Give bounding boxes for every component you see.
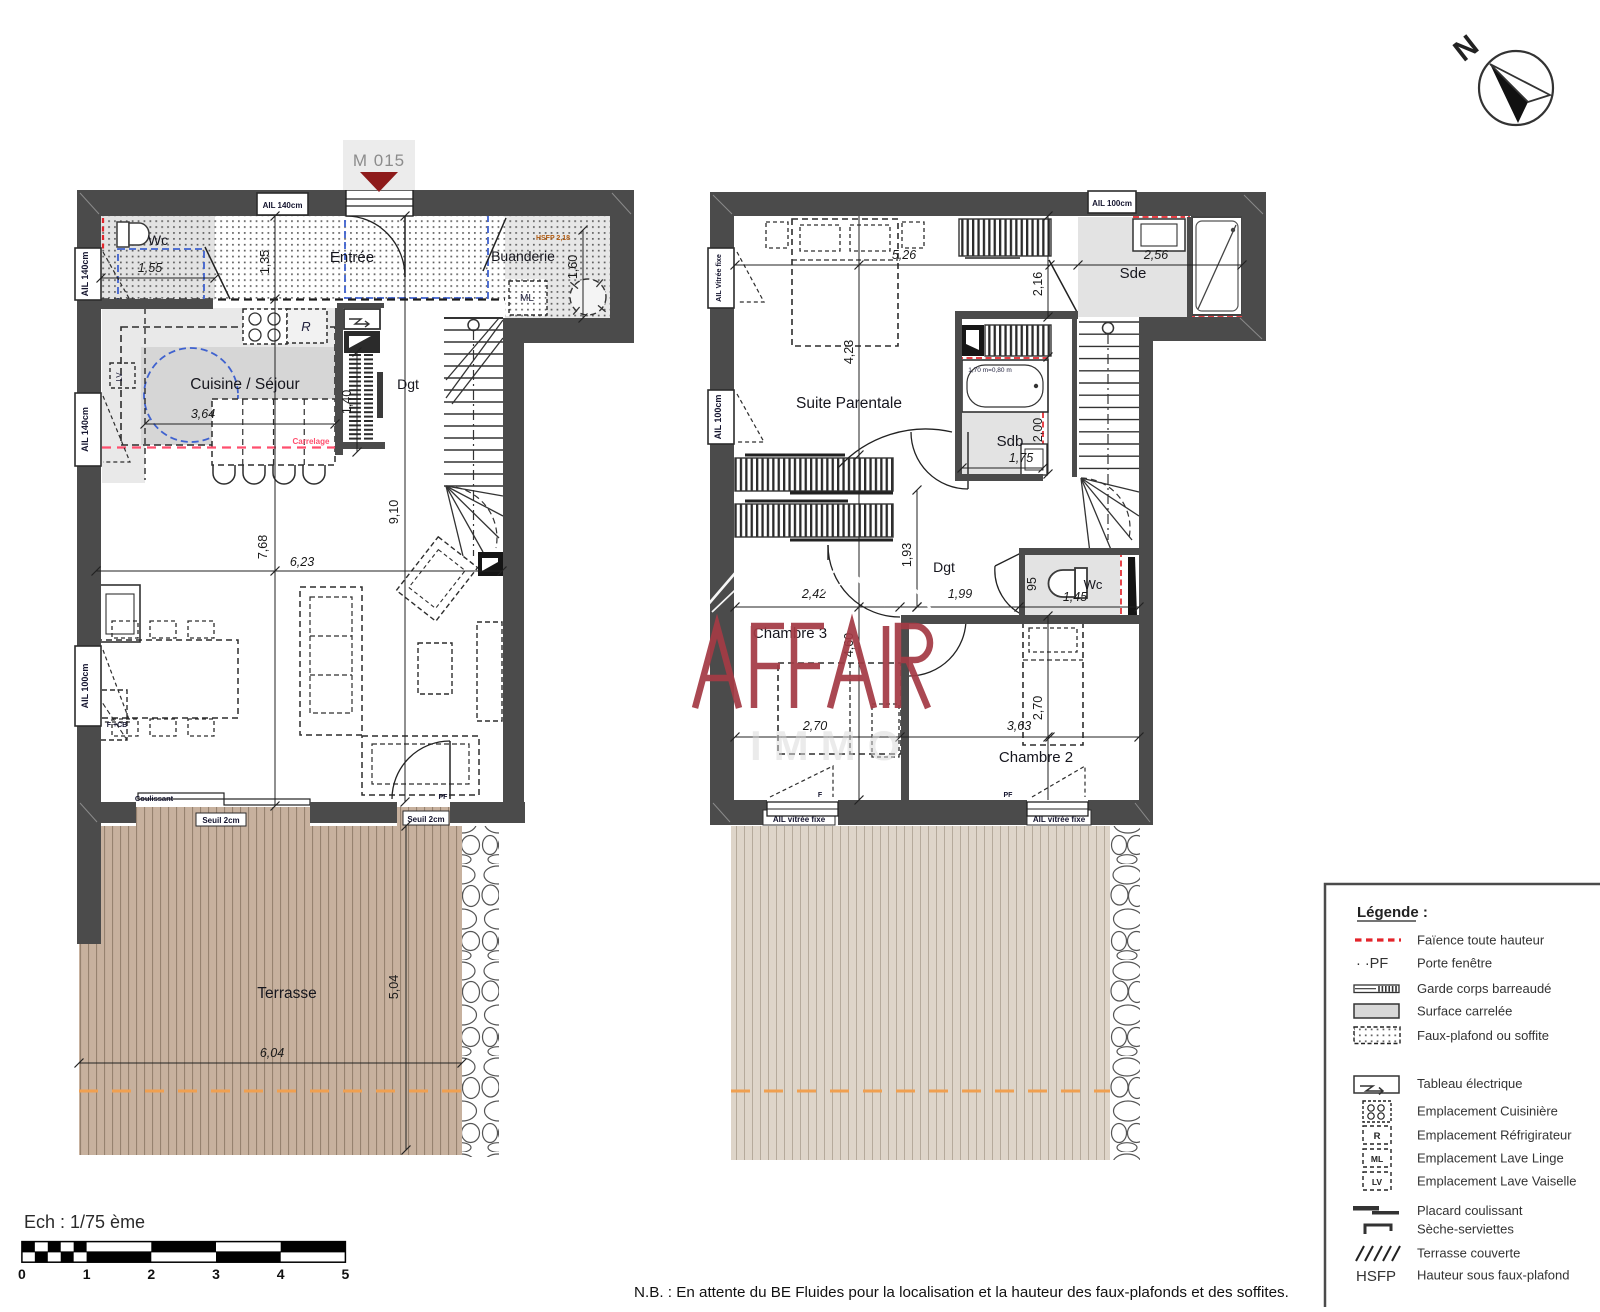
svg-text:AIL 100cm: AIL 100cm xyxy=(713,395,723,440)
svg-text:1: 1 xyxy=(83,1266,91,1282)
svg-text:Suite Parentale: Suite Parentale xyxy=(796,395,902,412)
svg-text:IMMO: IMMO xyxy=(750,722,912,769)
svg-text:Placard coulissant: Placard coulissant xyxy=(1417,1203,1523,1218)
svg-text:R: R xyxy=(1374,1131,1381,1142)
svg-text:Buanderie: Buanderie xyxy=(491,248,555,264)
svg-text:AIL 140cm: AIL 140cm xyxy=(80,252,90,297)
svg-text:Garde corps barreaudé: Garde corps barreaudé xyxy=(1417,981,1551,996)
svg-text:2,42: 2,42 xyxy=(801,587,826,601)
svg-text:HSFP 2,18: HSFP 2,18 xyxy=(536,235,570,242)
svg-text:AIL Vitrée fixe: AIL Vitrée fixe xyxy=(714,254,723,302)
svg-text:2,70: 2,70 xyxy=(1031,696,1045,720)
svg-text:M 015: M 015 xyxy=(353,151,405,170)
svg-text:3: 3 xyxy=(212,1266,220,1282)
svg-text:Dgt: Dgt xyxy=(397,376,419,392)
svg-text:4: 4 xyxy=(277,1266,285,1282)
svg-text:2: 2 xyxy=(147,1266,155,1282)
svg-text:AIL 100cm: AIL 100cm xyxy=(1092,199,1132,208)
svg-text:Entrée: Entrée xyxy=(330,249,374,266)
svg-text:1,35: 1,35 xyxy=(258,250,272,274)
svg-text:AIL 140cm: AIL 140cm xyxy=(263,201,303,210)
svg-text:2,16: 2,16 xyxy=(1031,272,1045,296)
svg-text:AIL 140cm: AIL 140cm xyxy=(80,407,90,452)
svg-text:Sdb: Sdb xyxy=(997,433,1024,450)
svg-text:Faux-plafond ou soffite: Faux-plafond ou soffite xyxy=(1417,1028,1549,1043)
svg-text:Légende :: Légende : xyxy=(1357,904,1428,921)
svg-text:Wc: Wc xyxy=(148,232,168,248)
svg-text:PF: PF xyxy=(1004,792,1014,799)
svg-text:Seuil 2cm: Seuil 2cm xyxy=(407,815,444,824)
svg-text:Coulissant: Coulissant xyxy=(135,794,174,803)
svg-text:ML: ML xyxy=(1371,1154,1383,1164)
svg-text:1,45: 1,45 xyxy=(1063,590,1087,604)
svg-text:Faïence toute hauteur: Faïence toute hauteur xyxy=(1417,933,1545,948)
svg-text:Hauteur sous faux-plafond: Hauteur sous faux-plafond xyxy=(1417,1268,1569,1283)
svg-text:Sde: Sde xyxy=(1120,265,1147,282)
svg-text:3,63: 3,63 xyxy=(1007,719,1031,733)
svg-text:Emplacement Lave Linge: Emplacement Lave Linge xyxy=(1417,1151,1564,1166)
svg-text:Emplacement Réfrigirateur: Emplacement Réfrigirateur xyxy=(1417,1128,1572,1143)
svg-text:1,70 m=0,80 m: 1,70 m=0,80 m xyxy=(968,367,1012,374)
svg-text:1,75: 1,75 xyxy=(1009,451,1033,465)
svg-text:N.B. : En attente du BE Fluide: N.B. : En attente du BE Fluides pour la … xyxy=(634,1284,1289,1301)
svg-text:LV: LV xyxy=(1372,1177,1383,1187)
svg-text:Carrelage: Carrelage xyxy=(293,437,330,446)
svg-text:5,04: 5,04 xyxy=(387,975,401,999)
svg-text:5,26: 5,26 xyxy=(892,248,916,262)
svg-text:9,10: 9,10 xyxy=(387,500,401,524)
svg-text:2,56: 2,56 xyxy=(1143,248,1168,262)
svg-text:Ech : 1/75 ème: Ech : 1/75 ème xyxy=(24,1212,145,1232)
svg-text:LV: LV xyxy=(115,372,124,382)
svg-text:HSFP: HSFP xyxy=(1356,1268,1396,1285)
svg-text:Terrasse couverte: Terrasse couverte xyxy=(1417,1246,1520,1261)
svg-text:AIL 100cm: AIL 100cm xyxy=(80,664,90,709)
svg-text:95: 95 xyxy=(1025,577,1039,591)
svg-text:Terrasse: Terrasse xyxy=(257,985,316,1002)
svg-text:PF: PF xyxy=(439,794,449,801)
svg-text:Wc: Wc xyxy=(1084,577,1103,592)
svg-text:Dgt: Dgt xyxy=(933,559,955,575)
svg-text:1,55: 1,55 xyxy=(138,261,162,275)
svg-text:5: 5 xyxy=(342,1266,350,1282)
svg-text:1,93: 1,93 xyxy=(900,543,914,567)
svg-text:Tableau électrique: Tableau électrique xyxy=(1417,1076,1523,1091)
svg-text:Cuisine / Séjour: Cuisine / Séjour xyxy=(190,376,299,393)
svg-text:7,68: 7,68 xyxy=(256,535,270,559)
svg-text:F: F xyxy=(818,792,823,799)
svg-text:Surface carrelée: Surface carrelée xyxy=(1417,1004,1512,1019)
svg-text:Porte fenêtre: Porte fenêtre xyxy=(1417,956,1492,971)
svg-text:Seuil 2cm: Seuil 2cm xyxy=(202,816,239,825)
svg-text:Emplacement Lave Vaiselle: Emplacement Lave Vaiselle xyxy=(1417,1174,1576,1189)
svg-text:R: R xyxy=(301,319,310,334)
svg-text:0: 0 xyxy=(18,1266,26,1282)
svg-text:2,00: 2,00 xyxy=(1031,418,1045,442)
svg-text:6,23: 6,23 xyxy=(290,555,314,569)
svg-text:1,40: 1,40 xyxy=(340,390,354,414)
svg-text:1,99: 1,99 xyxy=(948,587,972,601)
svg-text:Sèche-serviettes: Sèche-serviettes xyxy=(1417,1221,1514,1236)
svg-text:ML: ML xyxy=(520,293,534,304)
svg-text:6,04: 6,04 xyxy=(260,1046,284,1060)
svg-text:1,60: 1,60 xyxy=(566,255,580,279)
svg-text:Chambre 2: Chambre 2 xyxy=(999,749,1073,766)
svg-text:· ·PF: · ·PF xyxy=(1356,956,1388,972)
svg-text:Emplacement Cuisinière: Emplacement Cuisinière xyxy=(1417,1104,1558,1119)
svg-text:F +CB: F +CB xyxy=(107,722,127,729)
svg-text:3,64: 3,64 xyxy=(191,407,215,421)
svg-text:4,23: 4,23 xyxy=(842,340,856,364)
